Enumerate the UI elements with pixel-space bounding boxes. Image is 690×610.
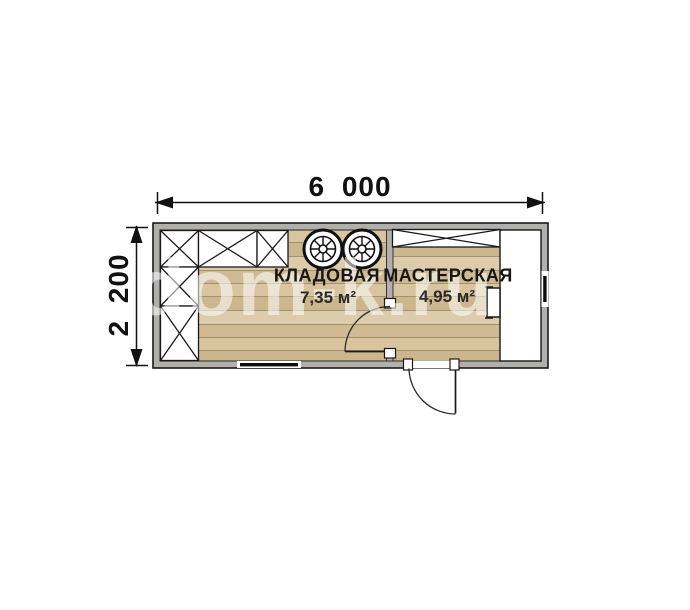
- shelf-x-icon: [199, 231, 258, 268]
- window-icon: [542, 271, 549, 307]
- stool: [485, 287, 500, 318]
- barrel-icon: [343, 230, 381, 268]
- workbench: [500, 230, 541, 361]
- dimension-width-label: 6 000: [308, 171, 391, 203]
- window-icon: [237, 361, 301, 368]
- shelf-x-icon: [161, 306, 199, 361]
- workshop-shelf: [393, 230, 501, 248]
- room-label-workshop: МАСТЕРСКАЯ: [383, 266, 513, 287]
- shelf-x-icon: [161, 231, 199, 268]
- room-label-storage: КЛАДОВАЯ: [274, 266, 380, 287]
- dimension-height-label: 2 200: [103, 253, 135, 336]
- shelf-x-icon: [393, 230, 501, 248]
- room-area-workshop: 4,95 м²: [419, 287, 475, 307]
- door-jamb: [404, 359, 413, 370]
- door-jamb: [385, 349, 396, 359]
- room-area-storage: 7,35 м²: [300, 288, 356, 308]
- shelf-x-icon: [257, 231, 288, 268]
- door-swing-icon: [409, 369, 456, 415]
- door-jamb: [450, 359, 459, 370]
- barrel-icon: [304, 230, 342, 268]
- shelf-x-icon: [161, 267, 199, 306]
- arrowhead-down-icon: [131, 349, 143, 367]
- exterior-door: [404, 359, 460, 414]
- floorplan-canvas: dom-k.ru 6 000 2 200 КЛАДОВАЯ 7,35 м² МА…: [0, 0, 690, 610]
